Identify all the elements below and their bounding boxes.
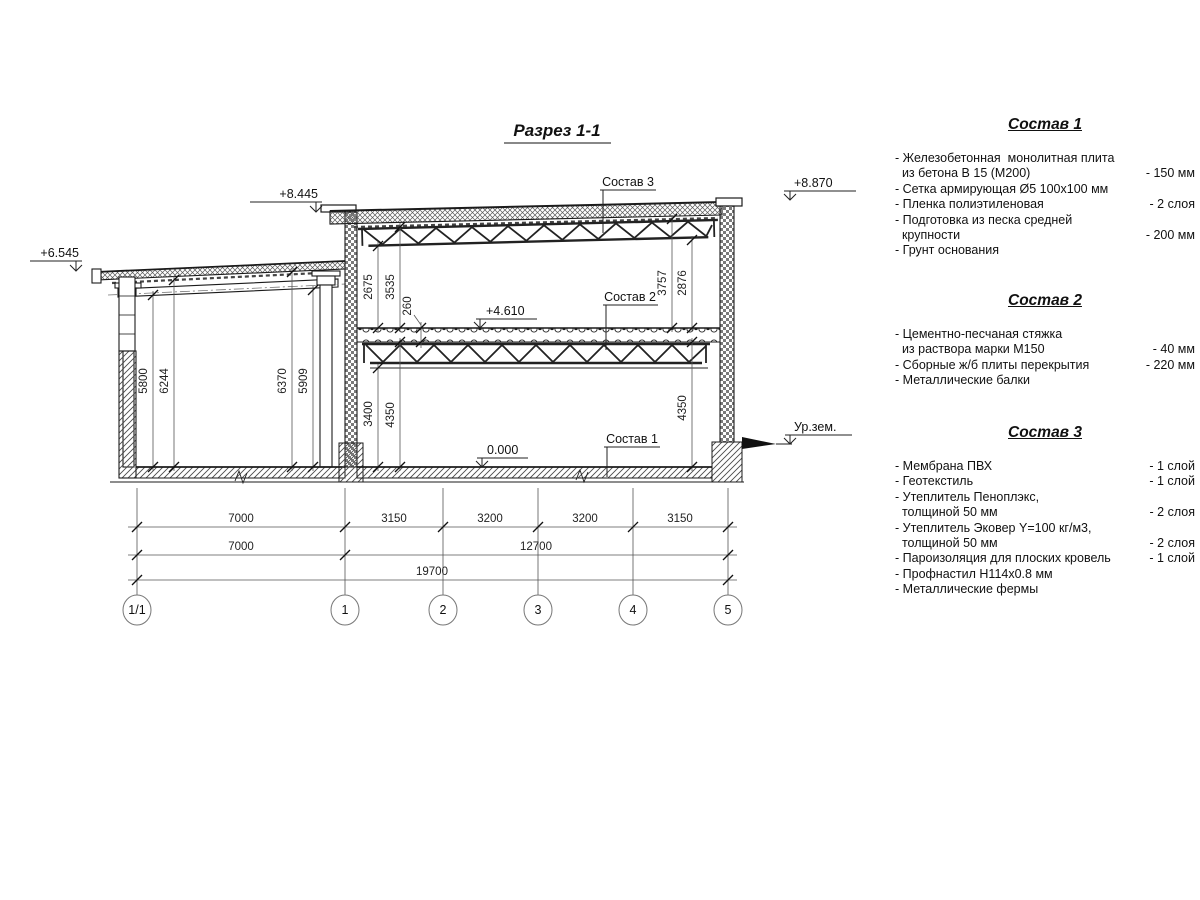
dim-label: 3200 — [572, 513, 598, 525]
layer-ref-label: Состав 2 — [604, 290, 656, 304]
spec-item-text: толщиной 50 мм — [895, 536, 998, 551]
spec-title: Состав 3 — [895, 424, 1195, 442]
spec-item-text: - Подготовка из песка средней — [895, 213, 1072, 228]
spec-item-text: - Мембрана ПВХ — [895, 459, 992, 474]
spec-row: - Цементно-песчаная стяжка — [895, 327, 1195, 342]
axis-label: 3 — [535, 603, 542, 617]
spec-item-text: - Металлические фермы — [895, 582, 1038, 597]
dim-label: 3150 — [667, 513, 693, 525]
spec-row: - Утеплитель Эковер Y=100 кг/м3, — [895, 521, 1195, 536]
dim-label: 260 — [402, 296, 414, 315]
spec-item-text: - Пароизоляция для плоских кровель — [895, 551, 1111, 566]
dim-label: 4350 — [385, 402, 397, 428]
dim-label: 6370 — [277, 368, 289, 394]
spec-row: - Утеплитель Пеноплэкс, — [895, 490, 1195, 505]
elevation-left-roof: +6.545 — [30, 246, 82, 271]
spec-item-text: - Профнастил Н114х0.8 мм — [895, 567, 1053, 582]
roof-truss — [358, 220, 718, 246]
spec-item-text: - Металлические балки — [895, 373, 1030, 388]
spec-title: Состав 1 — [895, 116, 1195, 134]
dim-label: 7000 — [228, 513, 254, 525]
spec-row: толщиной 50 мм - 2 слоя — [895, 505, 1195, 520]
spec-item-value: - 150 мм — [1146, 166, 1195, 181]
drawing-sheet: Разрез 1-1 — [0, 0, 1200, 900]
hall-wall-right — [720, 206, 734, 442]
axis-label: 1/1 — [128, 603, 145, 617]
spec-row: - Пленка полиэтиленовая - 2 слоя — [895, 197, 1195, 212]
spec-item-value: - 2 слоя — [1150, 505, 1195, 520]
spec-row: - Металлические балки — [895, 373, 1195, 388]
spec-row: из бетона В 15 (М200) - 150 мм — [895, 166, 1195, 181]
spec-row: - Грунт основания — [895, 243, 1195, 258]
floor2-slab — [357, 328, 720, 342]
spec-row: - Геотекстиль - 1 слой — [895, 474, 1195, 489]
dim-label: 3535 — [385, 274, 397, 300]
hall-parapet-right — [716, 198, 742, 206]
elevation-label: +4.610 — [486, 304, 525, 318]
dim-label: 3757 — [657, 270, 669, 296]
spec-item-value: - 1 слой — [1149, 551, 1195, 566]
spec-list: - Цементно-песчаная стяжка из раствора м… — [895, 327, 1195, 389]
spec-row: толщиной 50 мм - 2 слоя — [895, 536, 1195, 551]
spec-row: - Пароизоляция для плоских кровель - 1 с… — [895, 551, 1195, 566]
layer-ref-label: Состав 3 — [602, 175, 654, 189]
spec-row: крупности - 200 мм — [895, 228, 1195, 243]
spec-item-text: толщиной 50 мм — [895, 505, 998, 520]
spec-list: - Железобетонная монолитная плита из бет… — [895, 151, 1195, 259]
spec-item-text: - Геотекстиль — [895, 474, 973, 489]
elevation-label: +8.445 — [279, 187, 318, 201]
spec-row: - Сетка армирующая Ø5 100х100 мм — [895, 182, 1195, 197]
annex-beam — [118, 279, 338, 297]
horizontal-dimensions: 7000 3150 3200 3200 3150 7000 12700 1970… — [128, 488, 737, 595]
spec-row: - Сборные ж/б плиты перекрытия - 220 мм — [895, 358, 1195, 373]
elevation-label: +6.545 — [40, 246, 79, 260]
hall-wall-left — [345, 212, 357, 467]
dim-label: 3200 — [477, 513, 503, 525]
spec-item-text: - Утеплитель Эковер Y=100 кг/м3, — [895, 521, 1091, 536]
spec-item-text: - Железобетонная монолитная плита — [895, 151, 1114, 166]
spec-sostav-2: Состав 2 - Цементно-песчаная стяжка из р… — [895, 292, 1195, 389]
dim-label: 5800 — [138, 368, 150, 394]
layer-ref-label: Состав 1 — [606, 432, 658, 446]
axis-label: 1 — [342, 603, 349, 617]
spec-row: из раствора марки М150 - 40 мм — [895, 342, 1195, 357]
main-hall — [110, 198, 792, 482]
dim-label: 4350 — [677, 395, 689, 421]
spec-item-text: - Грунт основания — [895, 243, 999, 258]
spec-item-value: - 2 слоя — [1150, 536, 1195, 551]
dim-label: 19700 — [416, 566, 448, 578]
spec-item-text: - Пленка полиэтиленовая — [895, 197, 1044, 212]
spec-title: Состав 2 — [895, 292, 1195, 310]
elevation-main-left: +8.445 — [250, 187, 322, 212]
spec-row: - Профнастил Н114х0.8 мм — [895, 567, 1195, 582]
spec-item-text: - Утеплитель Пеноплэкс, — [895, 490, 1039, 505]
dim-label: 5909 — [298, 368, 310, 394]
spec-item-text: крупности — [895, 228, 960, 243]
dim-label: 7000 — [228, 541, 254, 553]
spec-item-value: - 220 мм — [1146, 358, 1195, 373]
dim-label: 6244 — [159, 368, 171, 394]
spec-item-value: - 40 мм — [1153, 342, 1195, 357]
annex-column-right — [312, 271, 340, 467]
elevation-label: 0.000 — [487, 443, 518, 457]
floor-truss — [362, 344, 710, 368]
spec-row: - Металлические фермы — [895, 582, 1195, 597]
spec-item-value: - 1 слой — [1149, 474, 1195, 489]
spec-item-text: - Сетка армирующая Ø5 100х100 мм — [895, 182, 1108, 197]
dim-label: 2675 — [363, 274, 375, 300]
hall-footing-right — [712, 442, 742, 482]
spec-sostav-3: Состав 3 - Мембрана ПВХ - 1 слой - Геоте… — [895, 424, 1195, 598]
spec-item-text: - Цементно-песчаная стяжка — [895, 327, 1062, 342]
hall-floor-slab — [357, 467, 712, 478]
ground-level-label: Ур.зем. — [794, 420, 836, 434]
axis-label: 4 — [630, 603, 637, 617]
spec-row: - Железобетонная монолитная плита — [895, 151, 1195, 166]
spec-row: - Подготовка из песка средней — [895, 213, 1195, 228]
spec-item-text: из бетона В 15 (М200) — [895, 166, 1030, 181]
axis-label: 2 — [440, 603, 447, 617]
dim-label: 3150 — [381, 513, 407, 525]
spec-item-value: - 1 слой — [1149, 459, 1195, 474]
dim-label: 3400 — [363, 401, 375, 427]
spec-sostav-1: Состав 1 - Железобетонная монолитная пли… — [895, 116, 1195, 259]
spec-item-value: - 2 слоя — [1150, 197, 1195, 212]
spec-list: - Мембрана ПВХ - 1 слой - Геотекстиль - … — [895, 459, 1195, 598]
elevation-main-right: +8.870 — [784, 176, 856, 200]
axis-label: 5 — [725, 603, 732, 617]
spec-item-value: - 200 мм — [1146, 228, 1195, 243]
dim-label: 12700 — [520, 541, 552, 553]
spec-row: - Мембрана ПВХ - 1 слой — [895, 459, 1195, 474]
spec-item-text: из раствора марки М150 — [895, 342, 1045, 357]
axis-bubbles: 1/1 1 2 3 4 5 — [123, 595, 742, 625]
elevation-floor2: +4.610 — [474, 304, 537, 328]
elevation-label: +8.870 — [794, 176, 833, 190]
drawing-title: Разрез 1-1 — [513, 121, 600, 140]
spec-item-text: - Сборные ж/б плиты перекрытия — [895, 358, 1089, 373]
annex-wall-left — [119, 277, 136, 478]
elevation-ground: Ур.зем. — [784, 420, 852, 444]
dim-label: 2876 — [677, 270, 689, 296]
blind-area — [742, 437, 776, 449]
elevation-zero: 0.000 — [476, 443, 528, 467]
annex-roof-edge — [92, 269, 101, 283]
